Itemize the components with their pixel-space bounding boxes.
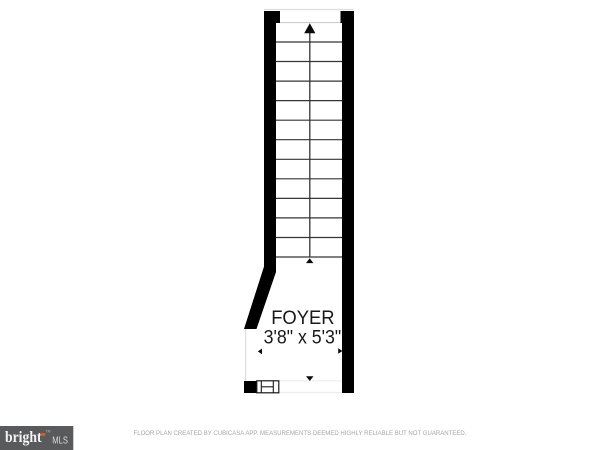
svg-text:FOYER: FOYER (271, 307, 334, 329)
svg-text:TM: TM (46, 430, 51, 434)
svg-text:MLS: MLS (52, 435, 68, 446)
svg-text:3'8" x 5'3": 3'8" x 5'3" (264, 327, 342, 349)
svg-text:bright: bright (5, 429, 42, 446)
svg-text:FLOOR PLAN CREATED BY CUBICASA: FLOOR PLAN CREATED BY CUBICASA APP. MEAS… (134, 430, 467, 437)
